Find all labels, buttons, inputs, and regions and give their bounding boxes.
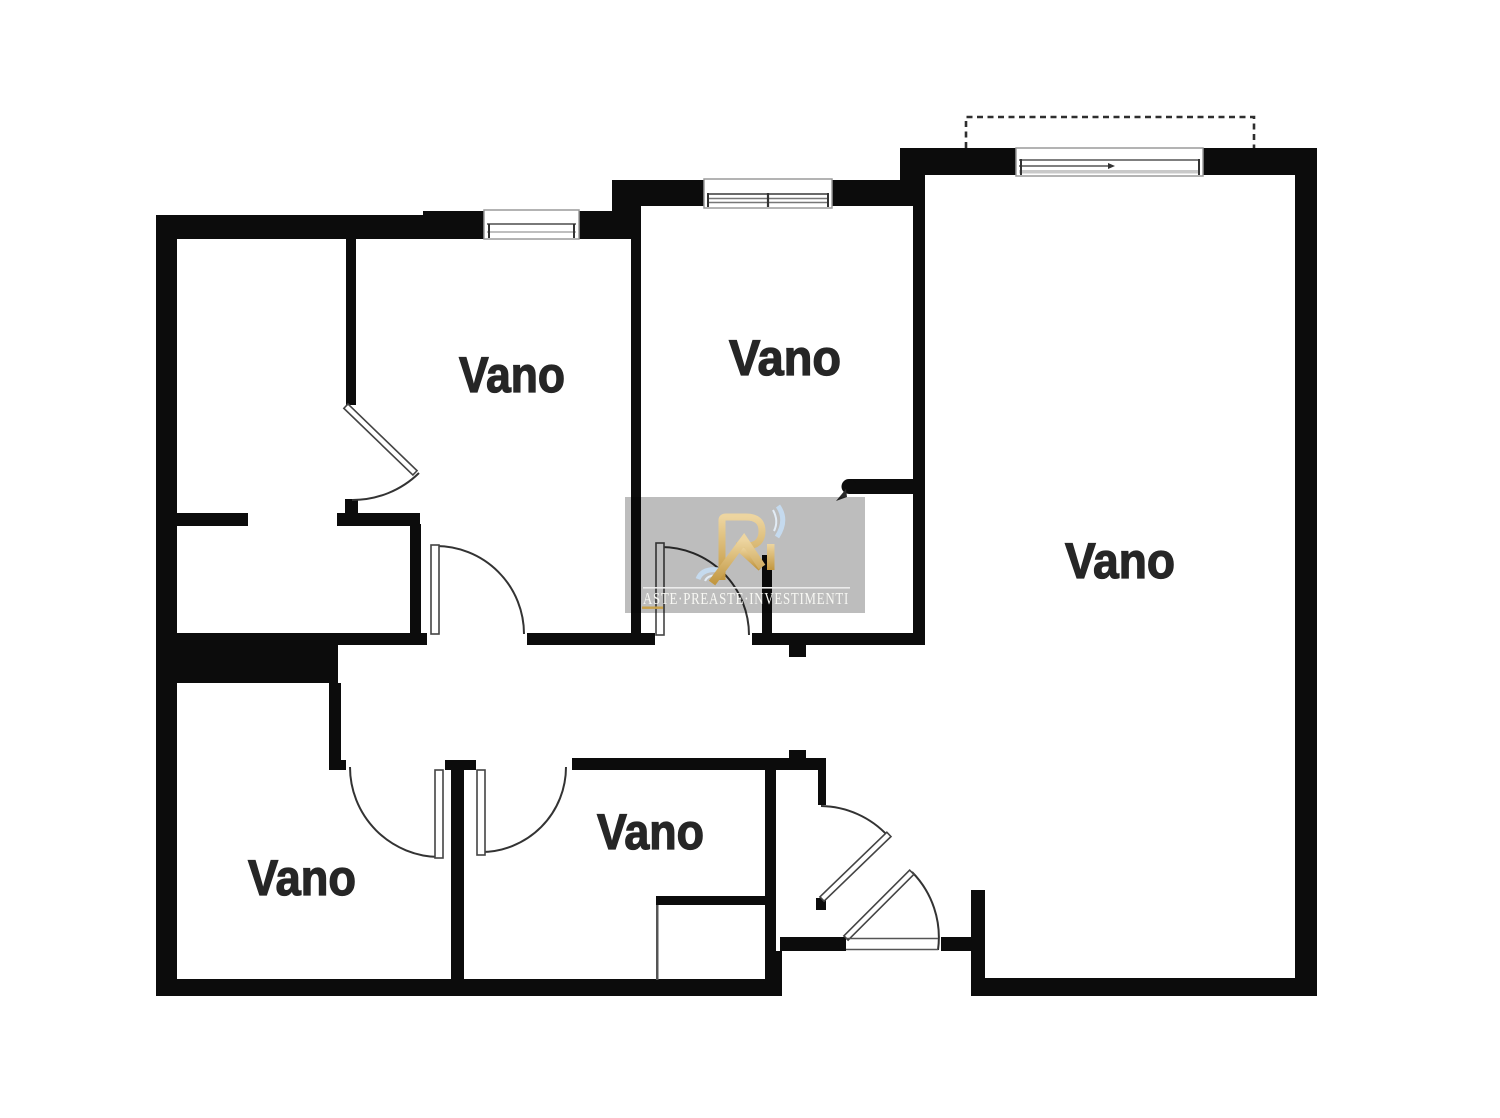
svg-text:Vano: Vano <box>729 330 841 386</box>
svg-text:Vano: Vano <box>597 804 704 860</box>
svg-text:ASTE·PREASTE·INVESTIMENTI: ASTE·PREASTE·INVESTIMENTI <box>643 589 849 608</box>
svg-text:Vano: Vano <box>459 347 565 403</box>
svg-text:Vano: Vano <box>248 850 356 906</box>
svg-text:Vano: Vano <box>1065 533 1175 589</box>
